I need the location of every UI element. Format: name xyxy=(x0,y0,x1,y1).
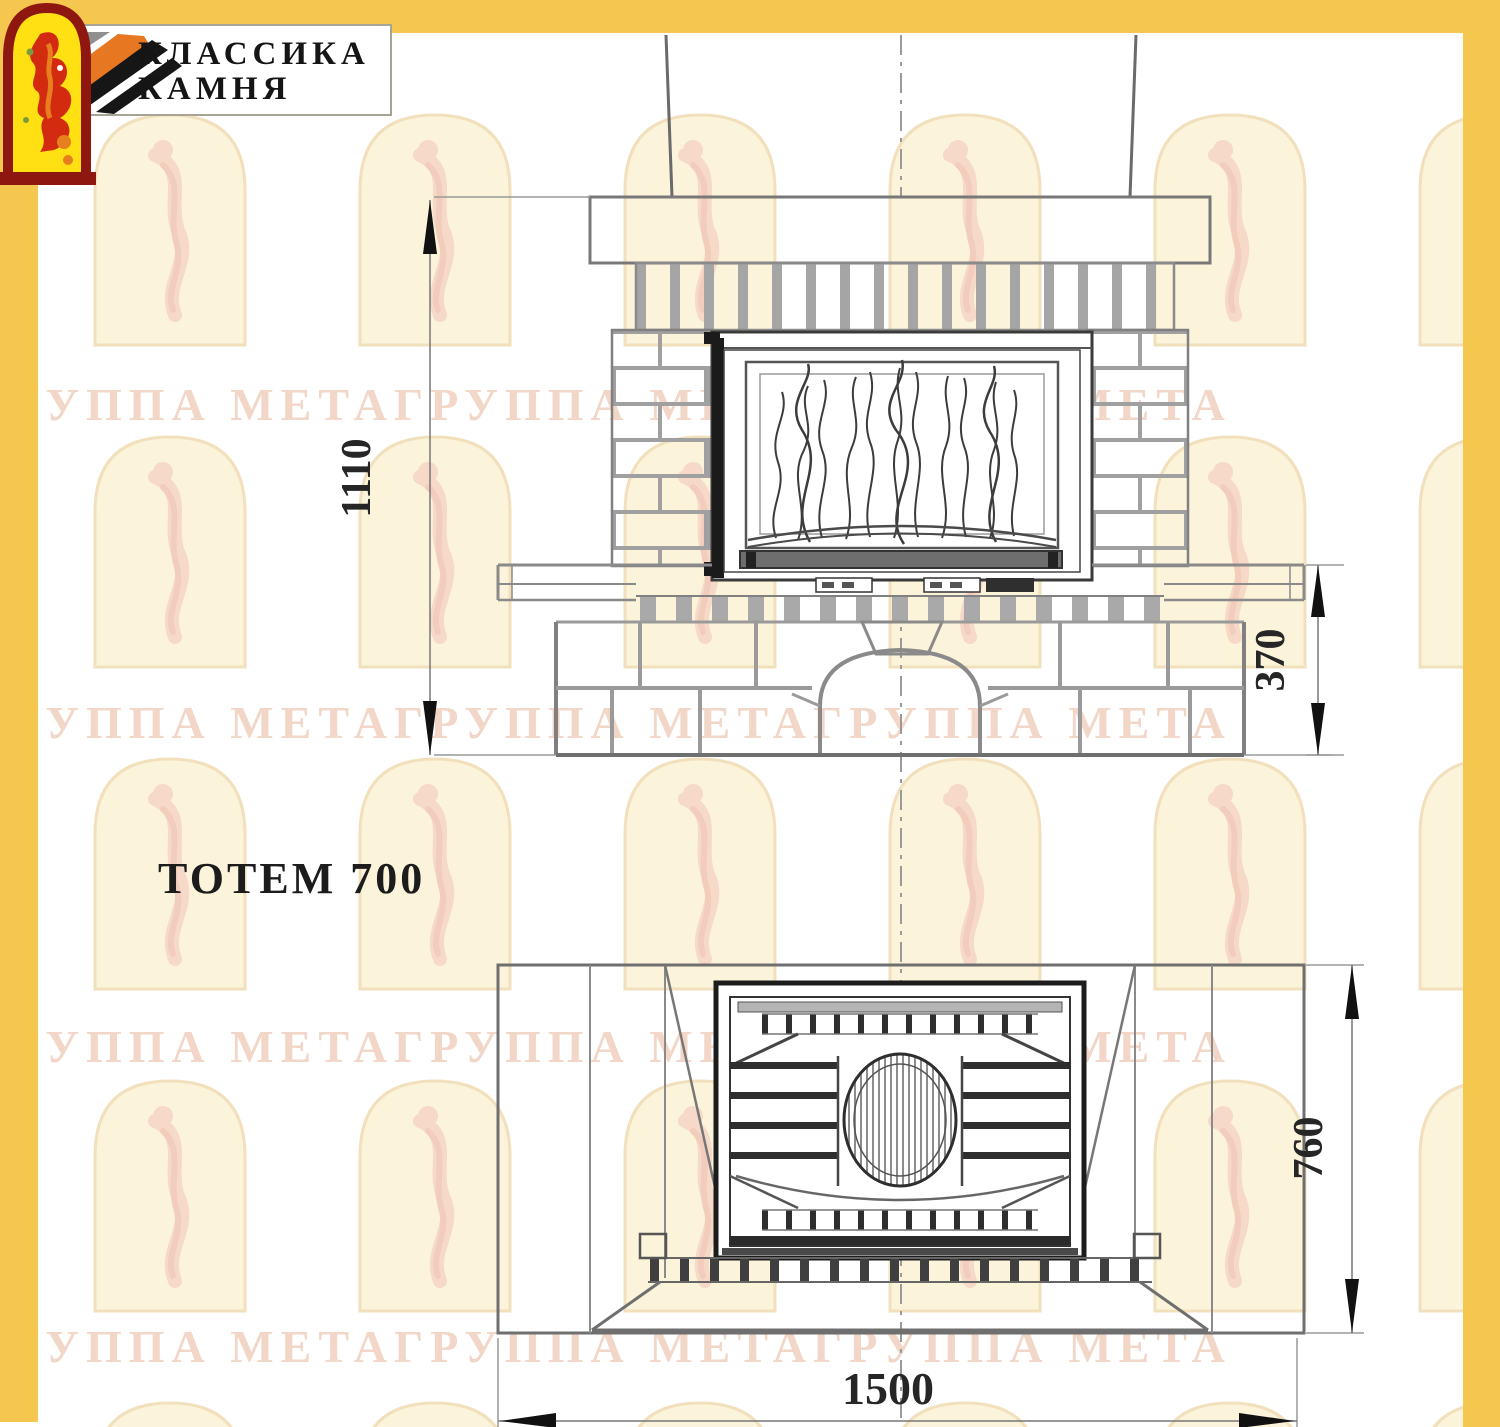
brick-pillar-left xyxy=(612,330,712,566)
plan-view: 760 1500 xyxy=(498,965,1364,1427)
plan-insert xyxy=(716,983,1084,1258)
dimension-370: 370 xyxy=(1248,565,1344,755)
brick-pillar-right xyxy=(1088,330,1188,566)
dimension-760: 760 xyxy=(1286,965,1364,1333)
dentil-row-upper xyxy=(636,263,1174,330)
dimension-1500: 1500 xyxy=(498,1338,1297,1427)
dentil-row-lower xyxy=(636,596,1164,622)
insert-vents xyxy=(816,578,1034,592)
page-border-right xyxy=(1463,0,1500,1427)
svg-text:1110: 1110 xyxy=(334,438,380,517)
page-border-left xyxy=(0,0,38,1422)
flue-opening xyxy=(844,1054,956,1186)
logo-text-line2: КАМНЯ xyxy=(138,73,291,106)
fireplace-drawing: 1110 370 ТОТЕМ 700 xyxy=(0,0,1500,1427)
svg-text:760: 760 xyxy=(1286,1117,1332,1180)
svg-text:1500: 1500 xyxy=(842,1363,934,1414)
mantel-shelf xyxy=(590,197,1210,263)
svg-text:370: 370 xyxy=(1248,629,1294,692)
dimension-1110: 1110 xyxy=(334,200,437,755)
logo-text-line1: КЛАССИКА xyxy=(138,38,370,71)
firebox-insert xyxy=(704,332,1092,592)
firebird-arch-emblem xyxy=(0,0,96,185)
model-title: ТОТЕМ 700 xyxy=(158,854,425,903)
page: ГРУППА МЕТАГРУППА МЕТАГРУППА МЕТА ГРУППА… xyxy=(0,0,1500,1427)
